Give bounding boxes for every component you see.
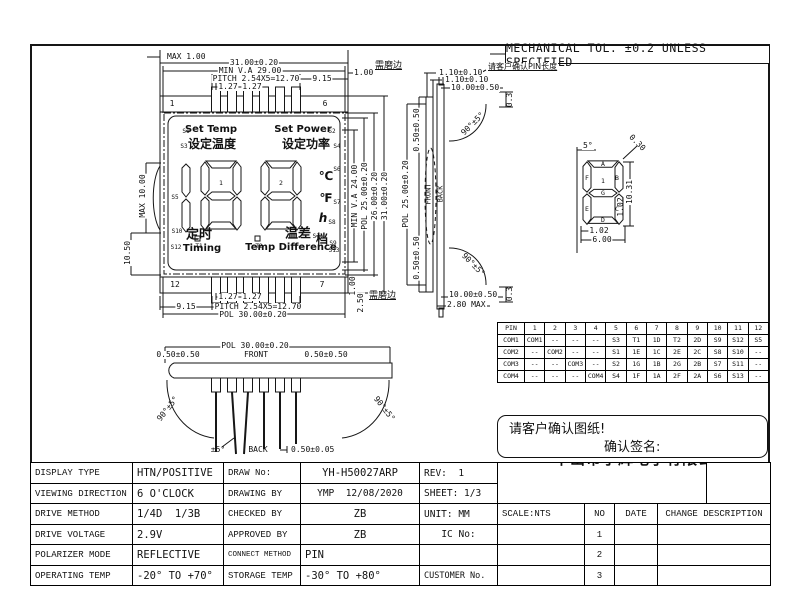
- tb-label-drive-method: DRIVE METHOD: [30, 503, 133, 525]
- dim-127-top-a: 1.27: [217, 83, 238, 91]
- lcd-marker-s4: S4: [333, 144, 340, 150]
- detail-digit-id: 1: [601, 178, 605, 185]
- pin-table-cell: 4: [585, 323, 605, 335]
- pin-table-cell: COM3: [498, 359, 525, 371]
- pin-table-cell: COM1: [498, 335, 525, 347]
- pin-table-cell: 7: [646, 323, 666, 335]
- tb-empty-cell: [657, 524, 771, 545]
- bottom-view-linework: [165, 347, 392, 454]
- lcd-marker-s5: S5: [171, 195, 178, 201]
- tb-value-display-type: HTN/POSITIVE: [132, 462, 224, 484]
- tb-projection-cell: [706, 462, 771, 504]
- lcd-marker-t2: T2: [255, 244, 262, 250]
- pin-table-cell: 8: [667, 323, 687, 335]
- note-confirm-pin-length: 请客户确认PIN长度: [487, 63, 558, 71]
- pin-table-cell: COM4: [585, 371, 605, 383]
- tb-value-checked-by: ZB: [300, 503, 420, 525]
- lcd-marker-s7: S7: [333, 200, 340, 206]
- lcd-marker-s12: S12: [171, 245, 182, 251]
- pin-table-cell: S9: [707, 335, 727, 347]
- tb-label-storage-temp: STORAGE TEMP: [223, 565, 301, 586]
- lcd-marker-s13: S13: [329, 248, 340, 254]
- pin-number-bottom-last: 7: [319, 281, 326, 289]
- pin-table-cell: COM2: [545, 347, 565, 359]
- tb-label-drawing-by: DRAWING BY: [223, 483, 301, 504]
- pin-table: PIN123456789101112COM1COM1------S3T11DT2…: [497, 322, 769, 383]
- side-dim-1000-top: 10.00±0.50: [450, 84, 500, 92]
- tb-blank-info: [419, 544, 498, 566]
- pin-table-cell: --: [545, 335, 565, 347]
- pin-table-cell: COM3: [565, 359, 585, 371]
- detail-seg-g: G: [601, 190, 605, 197]
- tb-label-display-type: DISPLAY TYPE: [30, 462, 133, 484]
- pin-table-cell: 5: [606, 323, 626, 335]
- side-dim-280-max: 2.80 MAX: [446, 301, 487, 309]
- tb-value-operating-temp: -20° TO +70°: [132, 565, 224, 586]
- pin-table-cell: 12: [748, 323, 768, 335]
- tb-customer-no: CUSTOMER No.: [419, 565, 498, 586]
- side-off-bottom: 0.50±0.50: [413, 235, 421, 280]
- tb-empty-cell: [614, 565, 658, 586]
- dim-max-1: MAX 1.00: [166, 53, 207, 61]
- company-name-cn: 中山市宇辉电子有限公司: [554, 462, 707, 469]
- pin-table-cell: 2: [545, 323, 565, 335]
- pin-table-row: COM3----COM3--S21G1B2G2BS7S11--: [498, 359, 769, 371]
- detail-dim-600: 6.00: [591, 236, 612, 244]
- tb-empty-cell: [657, 544, 771, 566]
- dim-915-top: 9.15: [311, 75, 332, 83]
- tb-scale: SCALE:NTS: [497, 503, 585, 525]
- pin-table-cell: T2: [667, 335, 687, 347]
- lcd-marker-s10: S10: [172, 229, 183, 235]
- side-view-linework: [407, 70, 513, 317]
- tb-label-checked-by: CHECKED BY: [223, 503, 301, 525]
- pin-table-cell: 1G: [626, 359, 646, 371]
- tb-value-drawing-by: YMP 12/08/2020: [300, 483, 420, 504]
- pin-table-cell: --: [525, 371, 545, 383]
- pin-table-cell: --: [585, 359, 605, 371]
- dim-1050: 10.50: [124, 240, 132, 266]
- tb-empty-cell: [497, 565, 585, 586]
- tb-label-connect-method: CONNECT METHOD: [223, 544, 301, 566]
- lcd-label-set-power-en: Set Power: [273, 125, 332, 135]
- tb-value-draw-no: YH-H50027ARP: [300, 462, 420, 484]
- dim-min-va-height: MIN V.A 24.00: [351, 164, 359, 229]
- detail-seg-e: E: [585, 206, 589, 213]
- pin-number-bottom-first: 12: [169, 281, 181, 289]
- pin-table-cell: 2C: [687, 347, 707, 359]
- lcd-icon-fahrenheit: ℉: [318, 192, 333, 204]
- detail-seg-d: D: [601, 217, 605, 224]
- tb-value-drive-voltage: 2.9V: [132, 524, 224, 545]
- tb-rev-no-1: 1: [584, 524, 615, 545]
- tb-rev: REV: 1: [419, 462, 498, 484]
- bottom-label-back: BACK: [247, 446, 268, 454]
- lcd-marker-t1: T1: [195, 244, 202, 250]
- tb-value-viewing-direction: 6 O'CLOCK: [132, 483, 224, 504]
- pin-table-cell: COM4: [498, 371, 525, 383]
- tb-label-polarizer-mode: POLARIZER MODE: [30, 544, 133, 566]
- pin-number-top-first: 1: [169, 100, 176, 108]
- bottom-label-front: FRONT: [243, 351, 269, 359]
- pin-table-cell: --: [565, 335, 585, 347]
- dim-127-top-b: 1.27: [241, 83, 262, 91]
- pin-table-row: COM1COM1------S3T11DT22DS9S12S5: [498, 335, 769, 347]
- tb-label-viewing-direction: VIEWING DIRECTION: [30, 483, 133, 504]
- pin-table-cell: --: [525, 359, 545, 371]
- tb-empty-cell: [497, 544, 585, 566]
- lcd-digit1-id: 1: [219, 180, 223, 187]
- bottom-dim-pol-30: POL 30.00±0.20: [220, 342, 289, 350]
- tb-value-storage-temp: -30° TO +80°: [300, 565, 420, 586]
- tb-unit: UNIT: MM: [419, 503, 498, 525]
- dim-pol-width: POL 30.00±0.20: [218, 311, 287, 319]
- confirm-signature-label: 确认签名:: [603, 441, 661, 454]
- pin-table-cell: 2F: [667, 371, 687, 383]
- side-dim-1000-bottom: 10.00±0.50: [448, 291, 498, 299]
- pin-table-cell: S10: [728, 347, 748, 359]
- detail-dim-1031: 10.31: [626, 179, 634, 205]
- pin-table-cell: S5: [748, 335, 768, 347]
- pin-table-header-row: PIN123456789101112: [498, 323, 769, 335]
- pin-table-cell: COM2: [498, 347, 525, 359]
- lcd-marker-s3: S3: [180, 144, 187, 150]
- confirm-drawing-text: 请客户确认图纸!: [508, 423, 606, 436]
- lcd-digit2-id: 2: [279, 180, 283, 187]
- tb-label-operating-temp: OPERATING TEMP: [30, 565, 133, 586]
- pin-table-cell: 1D: [646, 335, 666, 347]
- pin-table-cell: 2A: [687, 371, 707, 383]
- pin-table-cell: --: [565, 371, 585, 383]
- dim-127-bottom-b: 1.27: [241, 293, 262, 301]
- pin-table-cell: 2G: [667, 359, 687, 371]
- pin-table-cell: --: [748, 371, 768, 383]
- pin-table-cell: 1A: [646, 371, 666, 383]
- tb-rev-no-3: 3: [584, 565, 615, 586]
- lcd-icon-hour: h: [318, 212, 329, 224]
- tb-empty-cell: [657, 565, 771, 586]
- lcd-marker-s6: S6: [333, 167, 340, 173]
- pin-table-cell: S13: [728, 371, 748, 383]
- tb-value-drive-method: 1/4D 1/3B: [132, 503, 224, 525]
- detail-seg-b: B: [615, 175, 619, 182]
- pin-table-cell: 3: [565, 323, 585, 335]
- pin-table-cell: S12: [728, 335, 748, 347]
- pin-table-cell: PIN: [498, 323, 525, 335]
- dim-100-top-right: 1.00: [353, 69, 374, 77]
- pin-table-row: COM4------COM4S41F1A2F2AS6S13--: [498, 371, 769, 383]
- bottom-dim-pm5: ±5°: [210, 446, 226, 454]
- pin-table-cell: 1F: [626, 371, 646, 383]
- engineering-drawing-sheet: MECHANICAL TOL. ±0.2 UNLESS SPECIFIED 请客…: [0, 0, 800, 608]
- pin-table-cell: 2E: [667, 347, 687, 359]
- pin-table-cell: 10: [707, 323, 727, 335]
- tb-no-header: NO: [584, 503, 615, 525]
- pin-table-cell: 2B: [687, 359, 707, 371]
- lcd-label-tempdiff-cn: 温差: [284, 228, 312, 241]
- dim-pol-height: POL 25.00±0.20: [361, 161, 369, 230]
- pin-assignment-table: PIN123456789101112COM1COM1------S3T11DT2…: [497, 322, 769, 383]
- note-grind-edge-bottom: 需磨边: [368, 292, 397, 301]
- lcd-label-timing-cn: 定时: [185, 229, 213, 242]
- tb-value-approved-by: ZB: [300, 524, 420, 545]
- pin-table-cell: T1: [626, 335, 646, 347]
- pin-table-cell: S2: [606, 359, 626, 371]
- pin-table-cell: --: [525, 347, 545, 359]
- tb-empty-cell: [497, 524, 585, 545]
- dim-2600: 26.00±0.20: [371, 171, 379, 221]
- pin-table-cell: --: [748, 359, 768, 371]
- tb-change-header: CHANGE DESCRIPTION: [657, 503, 771, 525]
- pin-table-cell: S3: [606, 335, 626, 347]
- tb-sheet: SHEET: 1/3: [419, 483, 498, 504]
- side-dim-pol-25: POL 25.00±0.20: [402, 159, 410, 228]
- dim-250-bottom-right: 2.50: [357, 292, 365, 313]
- tb-label-draw-no: DRAW No:: [223, 462, 301, 484]
- side-label-front: FRONT: [426, 182, 433, 205]
- pin-table-cell: --: [585, 335, 605, 347]
- pin-table-cell: S11: [728, 359, 748, 371]
- tb-company-cell: 中山市宇辉电子有限公司 Zhong Shan Yuhui Electronics…: [497, 462, 707, 504]
- pin-table-cell: 1E: [626, 347, 646, 359]
- bottom-off-left: 0.50±0.50: [155, 351, 200, 359]
- pin-table-cell: S4: [606, 371, 626, 383]
- tb-date-header: DATE: [614, 503, 658, 525]
- detail-seg-f: F: [585, 175, 589, 182]
- lcd-marker-s2: S2: [328, 129, 335, 135]
- detail-seg-c: C: [615, 206, 619, 213]
- pin-table-cell: --: [565, 347, 585, 359]
- dim-height-total: 31.00±0.20: [381, 171, 389, 221]
- lcd-marker-s8: S8: [328, 220, 335, 226]
- side-dim-03-bottom: 0.3: [506, 286, 514, 302]
- side-off-top: 0.50±0.50: [413, 107, 421, 152]
- tb-empty-cell: [614, 544, 658, 566]
- detail-angle-5: 5°: [582, 142, 594, 150]
- pin-table-cell: S1: [606, 347, 626, 359]
- pin-number-top-last: 6: [322, 100, 329, 108]
- tb-label-drive-voltage: DRIVE VOLTAGE: [30, 524, 133, 545]
- dim-915-bottom: 9.15: [175, 303, 196, 311]
- tb-label-approved-by: APPROVED BY: [223, 524, 301, 545]
- side-dim-03-top: 0.3: [506, 92, 514, 108]
- pin-table-cell: COM1: [525, 335, 545, 347]
- dim-max-10: MAX 10.00: [139, 173, 147, 218]
- detail-seg-a: A: [601, 161, 605, 168]
- pin-table-cell: 2D: [687, 335, 707, 347]
- bottom-dim-050: 0.50±0.05: [290, 446, 335, 454]
- pin-table-cell: --: [585, 347, 605, 359]
- lcd-label-set-temp-en: Set Temp: [184, 125, 238, 135]
- side-label-back: BACK: [438, 185, 445, 204]
- bottom-off-right: 0.50±0.50: [303, 351, 348, 359]
- pin-table-cell: S6: [707, 371, 727, 383]
- pin-table-cell: 1: [525, 323, 545, 335]
- detail-dim-102-h: 1.02: [588, 227, 609, 235]
- note-grind-edge-top: 需磨边: [374, 62, 403, 71]
- lcd-marker-s1: S1: [182, 129, 189, 135]
- lcd-icon-celsius: ℃: [318, 170, 335, 182]
- lcd-marker-s11: S11: [313, 234, 324, 240]
- tb-empty-cell: [614, 524, 658, 545]
- pin-table-cell: S7: [707, 359, 727, 371]
- tb-value-connect-method: PIN: [300, 544, 420, 566]
- pin-table-row: COM2--COM2----S11E1C2E2CS8S10--: [498, 347, 769, 359]
- tb-value-polarizer-mode: REFLECTIVE: [132, 544, 224, 566]
- pin-table-cell: 1B: [646, 359, 666, 371]
- pin-table-cell: --: [545, 371, 565, 383]
- lcd-label-set-power-cn: 设定功率: [281, 138, 331, 150]
- lcd-label-set-temp-cn: 设定温度: [187, 138, 237, 150]
- tb-ic-no: IC No:: [419, 524, 498, 545]
- customer-confirm-box: 请客户确认图纸! 确认签名:: [497, 415, 768, 458]
- tb-rev-no-2: 2: [584, 544, 615, 566]
- pin-table-cell: --: [748, 347, 768, 359]
- pin-table-cell: 6: [626, 323, 646, 335]
- pin-table-cell: --: [545, 359, 565, 371]
- pin-table-cell: 1C: [646, 347, 666, 359]
- dim-127-bottom-a: 1.27: [217, 293, 238, 301]
- pin-table-cell: 11: [728, 323, 748, 335]
- pin-table-cell: 9: [687, 323, 707, 335]
- pin-table-cell: S8: [707, 347, 727, 359]
